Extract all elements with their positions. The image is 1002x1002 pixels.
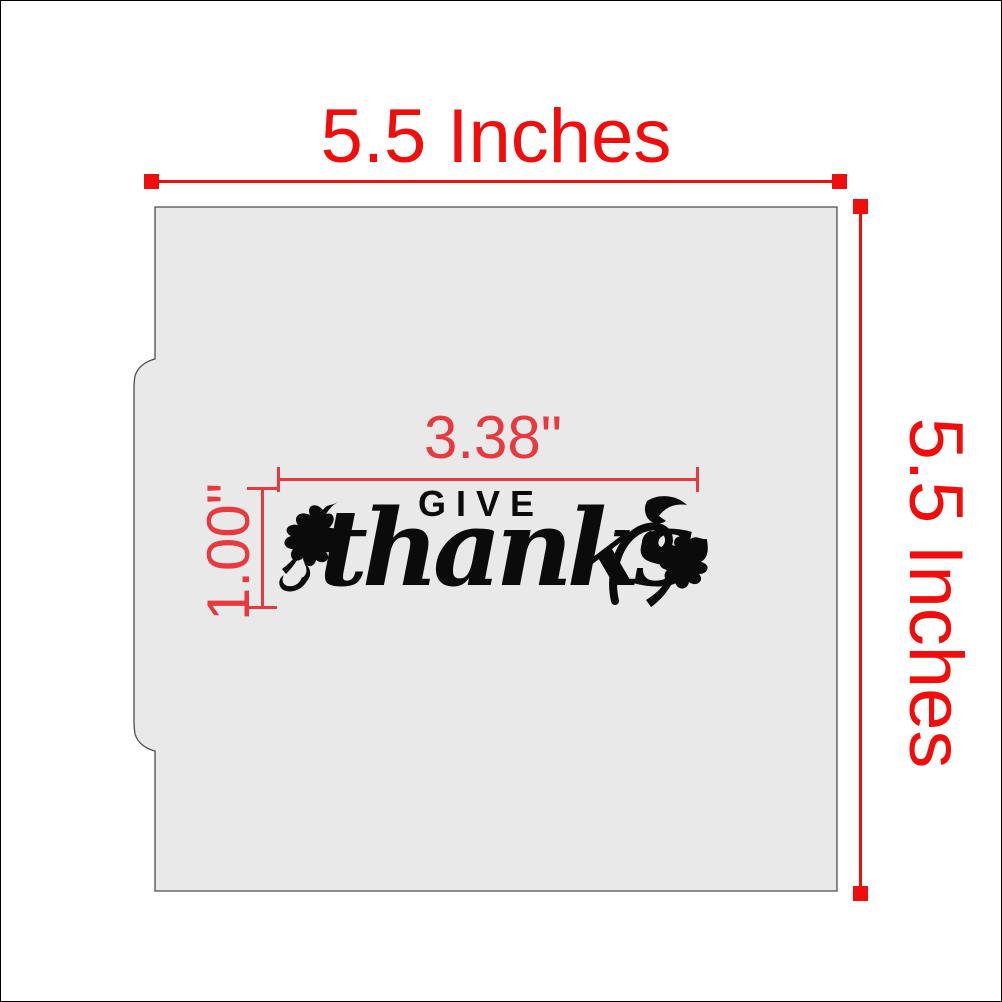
design-height-dimension-line — [261, 488, 264, 609]
stencil-dimension-diagram: 5.5 Inches 5.5 Inches 3.38" 1.00" GIVE t… — [0, 0, 1002, 1002]
dimension-tick — [247, 487, 277, 490]
design-width-label: 3.38" — [424, 408, 562, 468]
dimension-tick — [696, 467, 699, 492]
flourish-right-icon — [609, 495, 715, 619]
dimension-tick — [277, 467, 280, 492]
design-height-label: 1.00" — [199, 483, 259, 621]
oak-leaf-left-icon — [271, 495, 351, 607]
design-width-dimension-line — [278, 478, 699, 481]
small-leaf-icon — [645, 496, 687, 523]
